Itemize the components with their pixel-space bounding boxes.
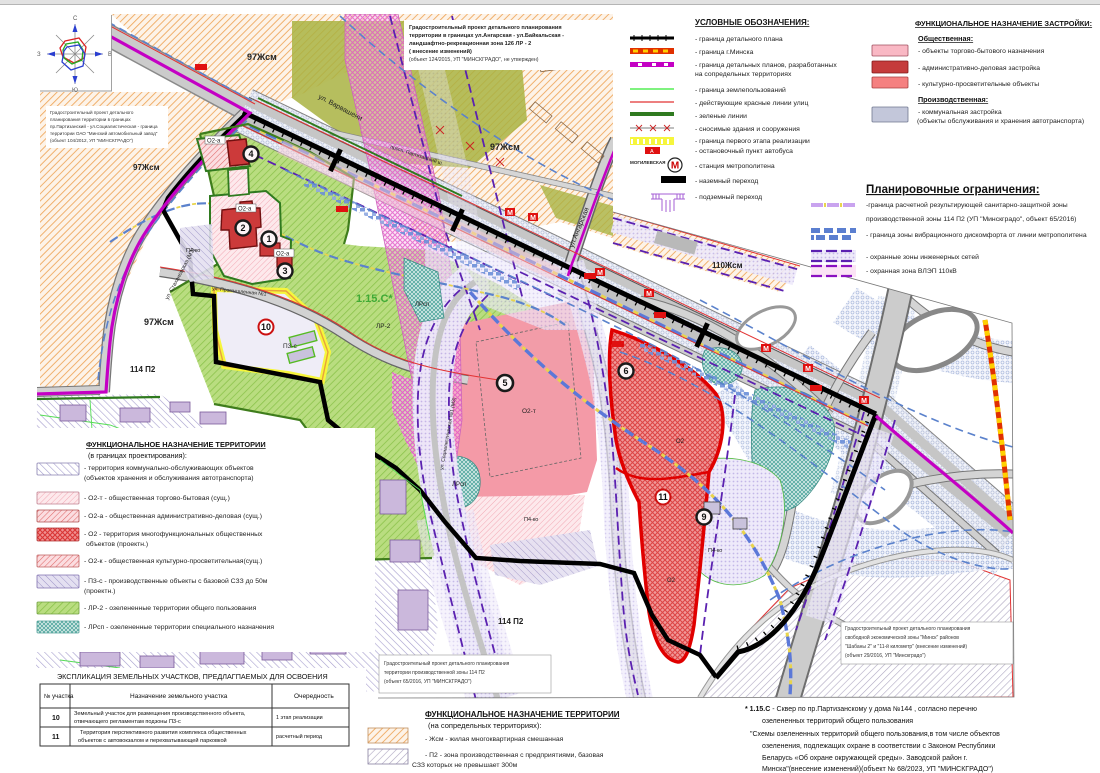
svg-text:объектов с автовокзалом и пере: объектов с автовокзалом и перехватывающе… (78, 737, 227, 744)
svg-text:11: 11 (658, 492, 668, 502)
svg-text:П4-ко: П4-ко (524, 517, 538, 523)
svg-text:1 этап реализации: 1 этап реализации (276, 715, 323, 721)
svg-text:-граница расчетной результирую: -граница расчетной результирующей санита… (866, 201, 1068, 209)
svg-text:А: А (650, 149, 654, 155)
svg-text:Планировочные ограничения:: Планировочные ограничения: (866, 184, 1040, 196)
svg-text:Производственная:: Производственная: (918, 95, 988, 104)
svg-text:97Жсм: 97Жсм (133, 163, 160, 172)
svg-text:ФУНКЦИОНАЛЬНОЕ НАЗНАЧЕНИЕ ЗАСТ: ФУНКЦИОНАЛЬНОЕ НАЗНАЧЕНИЕ ЗАСТРОЙКИ: (915, 19, 1092, 28)
svg-text:территории производственной зо: территории производственной зоны 114 П2 (384, 669, 485, 676)
svg-text:- О2-т - общественная торгово-: - О2-т - общественная торгово-бытовая (с… (84, 494, 230, 502)
svg-text:Градостроительный проект детал: Градостроительный проект детального (50, 109, 134, 115)
svg-text:объектов (проектн.): объектов (проектн.) (86, 540, 148, 548)
svg-text:СЗЗ которых не превышает 300м: СЗЗ которых не превышает 300м (412, 762, 518, 769)
svg-text:ландшафтно-рекреационная зона: ландшафтно-рекреационная зона 126 ЛР - 2 (409, 40, 531, 47)
svg-text:(объектов хранения и обслужива: (объектов хранения и обслуживания автотр… (84, 474, 254, 482)
svg-text:- культурно-просветительные об: - культурно-просветительные объекты (918, 80, 1039, 88)
svg-text:- сносимые здания и сооружения: - сносимые здания и сооружения (695, 126, 800, 133)
svg-text:ФУНКЦИОНАЛЬНОЕ НАЗНАЧЕНИЕ ТЕРР: ФУНКЦИОНАЛЬНОЕ НАЗНАЧЕНИЕ ТЕРРИТОРИИ (86, 440, 266, 449)
svg-text:- граница детальных планов, ра: - граница детальных планов, разработанны… (695, 61, 837, 69)
svg-text:( внесение изменений): ( внесение изменений) (409, 48, 472, 55)
svg-text:- П3-с - производственные объе: - П3-с - производственные объекты с базо… (84, 577, 268, 585)
svg-text:М: М (530, 215, 536, 222)
svg-text:свободной экономической зоны ": свободной экономической зоны "Минск" рай… (845, 634, 959, 641)
svg-text:- П2 - зона производственная с: - П2 - зона производственная с предприят… (425, 751, 604, 759)
svg-text:- административно-деловая заст: - административно-деловая застройка (918, 64, 1040, 72)
svg-text:- территория коммунально-обслу: - территория коммунально-обслуживающих о… (84, 464, 254, 472)
svg-text:(объекты обслуживания и хранен: (объекты обслуживания и хранения автотра… (917, 117, 1084, 125)
svg-text:- охранная зона ВЛЭП 110кВ: - охранная зона ВЛЭП 110кВ (866, 268, 957, 275)
svg-text:(объект 29/2016, УП "Минскград: (объект 29/2016, УП "Минскградо") (845, 653, 926, 659)
svg-text:территории в границах ул.Ангар: территории в границах ул.Ангарская - ул.… (409, 32, 564, 39)
svg-text:- наземный переход: - наземный переход (695, 177, 758, 185)
svg-text:"Схемы озелененных территорий: "Схемы озелененных территорий общего пол… (750, 730, 1000, 738)
svg-text:Очередность: Очередность (294, 693, 334, 700)
svg-text:110Жсм: 110Жсм (712, 261, 743, 270)
svg-text:ЛРсп: ЛРсп (452, 482, 466, 488)
svg-text:М: М (671, 161, 679, 172)
svg-text:- остановочный пункт автобуса: - остановочный пункт автобуса (695, 147, 793, 155)
svg-text:ЛРсп: ЛРсп (415, 302, 429, 308)
svg-text:(объект 104/2012, УП "МИНСКГРА: (объект 104/2012, УП "МИНСКГРАДО") (50, 138, 133, 143)
svg-text:М: М (763, 346, 769, 353)
svg-text:- коммунальная застройка: - коммунальная застройка (918, 108, 1002, 116)
svg-text:ЭКСПЛИКАЦИЯ ЗЕМЕЛЬНЫХ УЧАСТК: ЭКСПЛИКАЦИЯ ЗЕМЕЛЬНЫХ УЧАСТКОВ, ПРЕДЛАГП… (57, 672, 328, 681)
svg-text:Общественная:: Общественная: (918, 34, 973, 43)
svg-text:О2-а: О2-а (238, 207, 252, 213)
svg-text:Градостроительный проект детал: Градостроительный проект детального план… (384, 660, 510, 667)
svg-text:"Шабаны 2" и "11-й километр" (: "Шабаны 2" и "11-й километр" (внесение и… (845, 643, 967, 650)
svg-text:Градостроительный проект детал: Градостроительный проект детального план… (845, 625, 971, 632)
svg-text:З: З (37, 52, 41, 58)
svg-text:11: 11 (52, 734, 60, 741)
svg-text:10: 10 (261, 322, 271, 332)
svg-text:3: 3 (282, 266, 287, 276)
svg-text:- ЛРсп - озелененные территори: - ЛРсп - озелененные территории специаль… (84, 624, 274, 631)
svg-text:1: 1 (266, 234, 271, 244)
svg-text:- подземный переход: - подземный переход (695, 193, 762, 201)
svg-text:№ участка: № участка (44, 693, 74, 700)
svg-text:10: 10 (52, 715, 60, 722)
svg-text:114 П2: 114 П2 (498, 617, 524, 626)
svg-text:П4-ко: П4-ко (708, 548, 722, 554)
svg-text:территории ОАО "Минский автомо: территории ОАО "Минский автомобильный за… (50, 130, 158, 136)
svg-text:97Жсм: 97Жсм (144, 317, 174, 327)
svg-text:5: 5 (502, 378, 507, 388)
svg-text:97Жсм: 97Жсм (490, 142, 520, 152)
svg-text:пр.Партизанский - ул.Социалист: пр.Партизанский - ул.Социалистическая - … (50, 123, 158, 129)
svg-text:6: 6 (623, 366, 628, 376)
svg-text:М: М (646, 291, 652, 298)
svg-text:М: М (861, 398, 867, 405)
svg-text:- граница г.Минска: - граница г.Минска (695, 49, 754, 56)
svg-text:- станция метрополитена: - станция метрополитена (695, 163, 775, 170)
svg-text:114 П2: 114 П2 (130, 365, 156, 374)
svg-text:- объекты торгово-бытового наз: - объекты торгово-бытового назначения (918, 47, 1045, 55)
svg-text:озеленения, подлежащих охране: озеленения, подлежащих охране в соответс… (762, 742, 995, 750)
svg-text:1.15.С*: 1.15.С* (356, 293, 393, 305)
svg-text:С: С (73, 16, 78, 22)
svg-text:- Жсм - жилая многоквартирная: - Жсм - жилая многоквартирная смешанная (425, 736, 564, 743)
svg-text:- граница зоны вибрационного д: - граница зоны вибрационного дискомфорта… (866, 231, 1087, 239)
svg-text:- зеленые линии: - зеленые линии (695, 113, 747, 120)
svg-text:О2: О2 (676, 439, 685, 445)
svg-text:4: 4 (248, 149, 253, 159)
svg-text:Градостроительный проект детал: Градостроительный проект детального план… (409, 24, 562, 31)
svg-text:М: М (507, 210, 513, 217)
svg-text:97Жсм: 97Жсм (247, 52, 277, 62)
svg-text:на сопредельных территориях: на сопредельных территориях (695, 71, 792, 78)
svg-text:(объект 124/2015, УП "МИНСКГРА: (объект 124/2015, УП "МИНСКГРАДО", не ут… (409, 57, 539, 63)
svg-text:- О2-к - общественная культурн: - О2-к - общественная культурно-просвети… (84, 557, 262, 565)
svg-text:расчетный период: расчетный период (276, 733, 323, 740)
svg-text:О2: О2 (667, 578, 676, 584)
svg-text:Территория перспективного разв: Территория перспективного развития компл… (80, 730, 247, 736)
svg-text:МОГИЛЕВСКАЯ: МОГИЛЕВСКАЯ (630, 160, 665, 165)
svg-text:УСЛОВНЫЕ ОБОЗНАЧЕНИЯ:: УСЛОВНЫЕ ОБОЗНАЧЕНИЯ: (695, 18, 809, 27)
svg-text:- граница землепользований: - граница землепользований (695, 86, 786, 94)
svg-text:производственной зоны 114 П2 (: производственной зоны 114 П2 (УП "Минскг… (866, 215, 1076, 223)
svg-text:О2-а: О2-а (207, 139, 221, 145)
svg-text:ФУНКЦИОНАЛЬНОЕ НАЗНАЧЕНИЕ ТЕРР: ФУНКЦИОНАЛЬНОЕ НАЗНАЧЕНИЕ ТЕРРИТОРИИ (425, 710, 620, 719)
svg-text:(в границах проектирования):: (в границах проектирования): (88, 451, 187, 460)
svg-text:- О2-а - общественная админист: - О2-а - общественная административно-де… (84, 512, 262, 520)
svg-text:- ЛР-2 - озелененные территори: - ЛР-2 - озелененные территории общего п… (84, 604, 257, 612)
svg-text:Беларусь «Об охране окружающей: Беларусь «Об охране окружающей среды». З… (762, 754, 967, 762)
svg-text:ЛР-2: ЛР-2 (376, 323, 391, 330)
svg-text:О2-а: О2-а (276, 252, 290, 258)
svg-text:(объект 65/2016, УП "МИНСКГРАД: (объект 65/2016, УП "МИНСКГРАДО") (384, 679, 472, 685)
svg-text:Минска"(внесение изменений)(об: Минска"(внесение изменений)(объект № 68/… (762, 765, 993, 773)
svg-text:Назначение земельного участка: Назначение земельного участка (130, 693, 228, 700)
svg-text:2: 2 (240, 223, 245, 233)
svg-text:Земельный участок для размещен: Земельный участок для размещения произво… (74, 710, 246, 717)
svg-text:озелененных территорий общего: озелененных территорий общего пользовани… (762, 717, 913, 725)
svg-text:9: 9 (701, 512, 706, 522)
svg-text:- граница первого этапа реализ: - граница первого этапа реализации (695, 138, 810, 145)
svg-text:П3-с: П3-с (283, 343, 297, 350)
svg-text:- О2 - территория многофункци: - О2 - территория многофункциональных об… (84, 530, 263, 538)
svg-text:М: М (805, 366, 811, 373)
svg-text:- граница детального плана: - граница детального плана (695, 36, 783, 43)
svg-text:* 1.15.С - Сквер по пр.Партиза: * 1.15.С - Сквер по пр.Партизанскому у д… (745, 706, 977, 713)
svg-text:М: М (597, 270, 603, 277)
svg-text:- охранные зоны инженерных сет: - охранные зоны инженерных сетей (866, 253, 979, 261)
svg-text:(на сопредельных территориях):: (на сопредельных территориях): (428, 721, 541, 730)
svg-text:- действующие красные линии ул: - действующие красные линии улиц (695, 99, 808, 107)
svg-text:отвечающего регламентам подзон: отвечающего регламентам подзоны П3-с (74, 719, 181, 725)
svg-text:планирования территории в гра: планирования территории в границах (50, 117, 131, 122)
svg-text:(проектн.): (проектн.) (84, 588, 115, 595)
svg-text:О2-т: О2-т (522, 408, 536, 415)
